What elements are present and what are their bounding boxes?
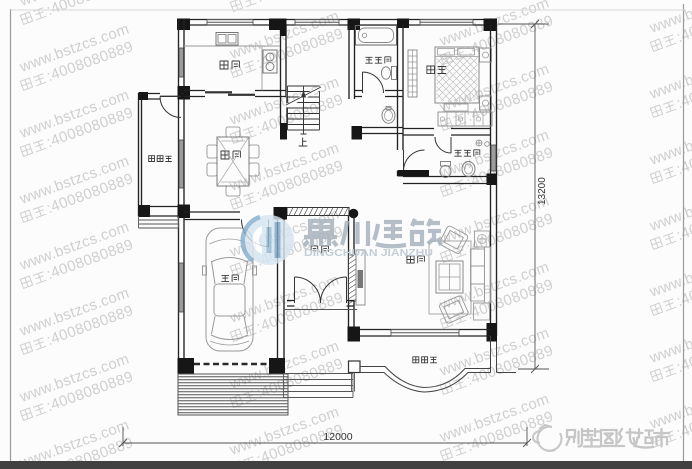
svg-text:12000: 12000 [323,431,352,443]
svg-text:DINGCHUAN JIANZHU: DINGCHUAN JIANZHU [304,247,433,259]
svg-text:13200: 13200 [537,177,548,205]
